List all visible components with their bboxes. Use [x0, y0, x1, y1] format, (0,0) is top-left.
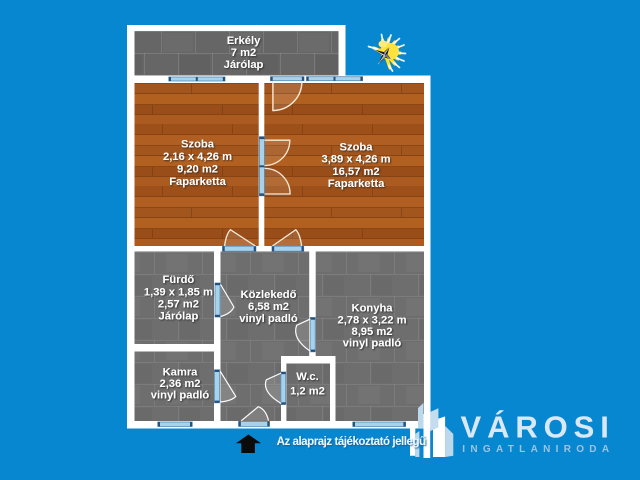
- svg-text:vinyl padló: vinyl padló: [151, 390, 210, 402]
- svg-text:Járólap: Járólap: [224, 59, 264, 71]
- svg-text:Járólap: Járólap: [159, 311, 199, 323]
- svg-text:3,89 x 4,26 m: 3,89 x 4,26 m: [321, 154, 390, 166]
- svg-text:Szoba: Szoba: [340, 141, 374, 153]
- svg-text:Közlekedő: Közlekedő: [241, 289, 297, 301]
- svg-text:Erkély: Erkély: [227, 35, 261, 47]
- svg-text:Konyha: Konyha: [351, 302, 393, 314]
- svg-text:1,2 m2: 1,2 m2: [290, 386, 325, 398]
- svg-text:vinyl padló: vinyl padló: [239, 313, 298, 325]
- svg-text:2,78 x 3,22 m: 2,78 x 3,22 m: [337, 315, 406, 327]
- svg-text:Faparketta: Faparketta: [169, 176, 226, 188]
- svg-text:7 m2: 7 m2: [231, 47, 257, 59]
- svg-text:8,95 m2: 8,95 m2: [351, 326, 392, 338]
- svg-text:1,39 x 1,85 m: 1,39 x 1,85 m: [144, 286, 213, 298]
- svg-text:vinyl padló: vinyl padló: [343, 337, 402, 349]
- svg-text:2,16 x 4,26 m: 2,16 x 4,26 m: [163, 151, 232, 163]
- svg-text:Fürdő: Fürdő: [163, 274, 195, 286]
- svg-text:Szoba: Szoba: [181, 139, 215, 151]
- svg-text:2,36 m2: 2,36 m2: [159, 378, 200, 390]
- svg-text:6,58 m2: 6,58 m2: [248, 301, 289, 313]
- svg-text:2,57 m2: 2,57 m2: [158, 299, 199, 311]
- svg-text:Faparketta: Faparketta: [328, 178, 385, 190]
- svg-text:W.c.: W.c.: [296, 371, 318, 383]
- svg-text:Az alaprajz tájékoztató jelleg: Az alaprajz tájékoztató jellegű: [277, 436, 426, 448]
- svg-text:16,57 m2: 16,57 m2: [332, 166, 379, 178]
- svg-text:INGATLANIRODA: INGATLANIRODA: [462, 444, 614, 455]
- svg-text:Kamra: Kamra: [163, 366, 199, 378]
- svg-text:VÁROSI: VÁROSI: [461, 409, 615, 444]
- svg-text:9,20 m2: 9,20 m2: [177, 164, 218, 176]
